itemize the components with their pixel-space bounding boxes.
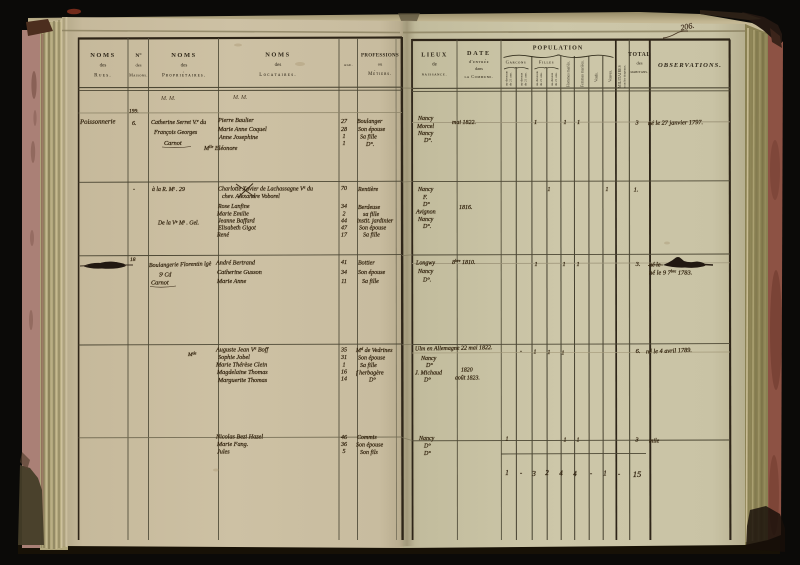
svg-text:1: 1 bbox=[606, 187, 609, 193]
svg-text:35: 35 bbox=[340, 348, 347, 354]
svg-text:Sa fille: Sa fille bbox=[360, 362, 377, 369]
svg-text:D°: D° bbox=[425, 362, 433, 369]
svg-text:44: 44 bbox=[341, 218, 347, 225]
svg-text:Bottier: Bottier bbox=[358, 261, 375, 267]
svg-text:Sophie Jobel: Sophie Jobel bbox=[218, 354, 250, 361]
svg-text:1: 1 bbox=[548, 350, 551, 356]
svg-text:Morcel: Morcel bbox=[416, 124, 434, 130]
svg-text:D°: D° bbox=[423, 443, 431, 450]
svg-text:Longwy: Longwy bbox=[415, 261, 435, 267]
svg-text:1: 1 bbox=[563, 119, 566, 126]
svg-text:Pierre Baulier: Pierre Baulier bbox=[217, 117, 254, 124]
svg-text:de 21 ans.: de 21 ans. bbox=[554, 72, 558, 86]
svg-text:André Bertrand: André Bertrand bbox=[215, 260, 256, 267]
svg-text:1816.: 1816. bbox=[459, 205, 473, 211]
svg-text:PROFESSIONS: PROFESSIONS bbox=[361, 54, 399, 59]
svg-text:Catherine Serret V.e du: Catherine Serret V.e du bbox=[151, 118, 206, 126]
svg-text:TOTAL: TOTAL bbox=[628, 52, 651, 58]
svg-text:ʟᴀ Cᴏᴍᴍᴜɴᴇ.: ʟᴀ Cᴏᴍᴍᴜɴᴇ. bbox=[465, 74, 494, 79]
svg-text:27: 27 bbox=[341, 119, 348, 125]
svg-text:34: 34 bbox=[340, 269, 347, 276]
svg-text:Nicolas Bezi Hazel: Nicolas Bezi Hazel bbox=[215, 434, 263, 441]
svg-text:D°: D° bbox=[423, 377, 431, 384]
svg-text:Elisabeth Gigot: Elisabeth Gigot bbox=[217, 226, 256, 232]
svg-text:70: 70 bbox=[341, 186, 347, 192]
svg-text:46: 46 bbox=[341, 434, 347, 441]
svg-text:Marie Anne Coquel: Marie Anne Coquel bbox=[217, 126, 267, 133]
svg-text:M. M.: M. M. bbox=[160, 96, 176, 102]
svg-text:F.: F. bbox=[422, 195, 427, 201]
svg-text:Marie Thérèse Clein: Marie Thérèse Clein bbox=[215, 362, 267, 369]
svg-text:Avignon: Avignon bbox=[415, 210, 436, 216]
svg-text:47: 47 bbox=[341, 225, 348, 232]
svg-text:Carnot: Carnot bbox=[151, 280, 169, 287]
svg-text:sous les drapeaux.: sous les drapeaux. bbox=[623, 65, 627, 88]
svg-text:31: 31 bbox=[340, 355, 347, 361]
svg-text:28: 28 bbox=[341, 127, 347, 133]
svg-text:Jules: Jules bbox=[217, 449, 230, 456]
svg-text:2: 2 bbox=[343, 212, 346, 218]
svg-text:Nancy: Nancy bbox=[420, 356, 437, 362]
svg-text:De la Ve Mt . Gel.: De la Ve Mt . Gel. bbox=[157, 219, 199, 227]
svg-text:Son épouse: Son épouse bbox=[356, 443, 383, 449]
svg-text:Boulanger: Boulanger bbox=[357, 119, 383, 125]
svg-text:ᴀɢᴇ.: ᴀɢᴇ. bbox=[344, 62, 353, 67]
svg-text:1: 1 bbox=[534, 261, 537, 268]
svg-text:199.: 199. bbox=[129, 109, 139, 115]
svg-text:août 1823.: août 1823. bbox=[455, 376, 480, 382]
svg-text:Son épouse: Son épouse bbox=[359, 226, 386, 232]
svg-text:2: 2 bbox=[545, 469, 549, 477]
svg-text:St Cd: St Cd bbox=[159, 271, 171, 279]
svg-text:Anne Josephine: Anne Josephine bbox=[218, 134, 258, 141]
svg-text:à la R. Mt . 29: à la R. Mt . 29 bbox=[152, 186, 185, 194]
svg-text:des: des bbox=[636, 61, 642, 66]
svg-text:Marie Fang.: Marie Fang. bbox=[216, 441, 248, 448]
svg-text:Charlotte Xavier de Lachassagn: Charlotte Xavier de Lachassagne Ve du bbox=[218, 185, 313, 193]
svg-text:1: 1 bbox=[343, 141, 346, 147]
svg-text:Auguste Jean Ve Boff: Auguste Jean Ve Boff bbox=[215, 346, 269, 354]
svg-text:14: 14 bbox=[341, 376, 347, 383]
svg-text:5: 5 bbox=[343, 449, 346, 455]
svg-text:1: 1 bbox=[343, 363, 346, 369]
svg-text:Nancy: Nancy bbox=[417, 187, 434, 193]
svg-text:41: 41 bbox=[341, 259, 347, 266]
svg-text:M. M.: M. M. bbox=[232, 95, 248, 101]
svg-text:Veufs.: Veufs. bbox=[595, 72, 599, 82]
svg-text:1: 1 bbox=[343, 134, 346, 140]
svg-text:ou: ou bbox=[378, 62, 383, 67]
svg-text:15: 15 bbox=[633, 469, 642, 479]
svg-text:Sa fille: Sa fille bbox=[363, 232, 380, 239]
svg-text:Nancy: Nancy bbox=[417, 269, 434, 275]
svg-text:des: des bbox=[135, 63, 141, 68]
svg-text:D°.: D°. bbox=[365, 141, 374, 148]
svg-text:NOMS: NOMS bbox=[265, 52, 291, 59]
svg-text:Nancy: Nancy bbox=[417, 131, 434, 137]
svg-text:6.: 6. bbox=[636, 348, 641, 355]
svg-text:René: René bbox=[216, 233, 229, 239]
svg-text:Mᴀɪsᴏɴs.: Mᴀɪsᴏɴs. bbox=[129, 73, 148, 78]
svg-text:1: 1 bbox=[577, 438, 580, 444]
svg-text:mai 1822.: mai 1822. bbox=[452, 120, 476, 126]
svg-text:Marguerite Thomas: Marguerite Thomas bbox=[217, 377, 268, 384]
svg-text:Son fils: Son fils bbox=[360, 449, 379, 456]
svg-text:chev. Alexandre Voborel: chev. Alexandre Voborel bbox=[222, 194, 280, 200]
svg-text:NOMS: NOMS bbox=[171, 52, 197, 59]
svg-text:Commis: Commis bbox=[357, 435, 377, 441]
svg-text:Jeanne Baffard: Jeanne Baffard bbox=[218, 218, 256, 225]
svg-text:-: - bbox=[133, 187, 135, 193]
svg-text:né le 27 janvier 1797.: né le 27 janvier 1797. bbox=[648, 119, 703, 127]
svg-text:-: - bbox=[520, 349, 522, 355]
svg-text:Son épouse: Son épouse bbox=[358, 270, 385, 276]
svg-text:1: 1 bbox=[564, 438, 567, 444]
svg-text:ʜᴀʙɪᴛᴀɴs.: ʜᴀʙɪᴛᴀɴs. bbox=[631, 69, 649, 74]
svg-text:Son épouse: Son épouse bbox=[358, 356, 385, 362]
svg-text:D°: D° bbox=[368, 377, 376, 384]
svg-text:Catherine Gusson: Catherine Gusson bbox=[217, 269, 262, 276]
svg-text:des: des bbox=[100, 64, 107, 69]
svg-text:François Georges: François Georges bbox=[153, 130, 198, 136]
svg-text:1: 1 bbox=[562, 351, 565, 357]
svg-text:né le 9 7bre 1783.: né le 9 7bre 1783. bbox=[649, 269, 693, 277]
svg-text:Sa fille: Sa fille bbox=[362, 278, 379, 285]
svg-text:Femmes mariées.: Femmes mariées. bbox=[581, 60, 585, 87]
svg-text:3: 3 bbox=[531, 469, 536, 478]
svg-text:Poissonnerie: Poissonnerie bbox=[79, 118, 116, 126]
svg-text:1: 1 bbox=[534, 119, 537, 126]
svg-text:Mᴇ́ᴛɪᴇʀs.: Mᴇ́ᴛɪᴇʀs. bbox=[368, 71, 392, 77]
svg-text:4: 4 bbox=[559, 470, 563, 478]
svg-text:Md de Vedrines: Md de Vedrines bbox=[355, 346, 393, 354]
svg-text:de 21 ans.: de 21 ans. bbox=[524, 72, 528, 86]
svg-text:DATE: DATE bbox=[467, 50, 491, 57]
svg-text:d'ᴇɴᴛʀᴇ́ᴇ: d'ᴇɴᴛʀᴇ́ᴇ bbox=[469, 59, 490, 64]
svg-text:POPULATION: POPULATION bbox=[533, 46, 584, 52]
svg-text:17: 17 bbox=[341, 233, 348, 239]
svg-text:34: 34 bbox=[340, 203, 347, 210]
svg-text:ɴᴀɪssᴀɴᴄᴇ.: ɴᴀɪssᴀɴᴄᴇ. bbox=[422, 72, 447, 77]
svg-text:4: 4 bbox=[573, 470, 577, 478]
svg-text:Rentière: Rentière bbox=[357, 187, 378, 193]
svg-text:Pʀᴏᴘʀɪᴇ́ᴛᴀɪʀᴇs.: Pʀᴏᴘʀɪᴇ́ᴛᴀɪʀᴇs. bbox=[162, 73, 206, 79]
svg-text:6.: 6. bbox=[132, 121, 137, 127]
svg-text:D°.: D°. bbox=[422, 277, 431, 284]
svg-text:f herbagère: f herbagère bbox=[356, 370, 384, 377]
svg-text:1: 1 bbox=[534, 350, 537, 356]
svg-text:Son épouse: Son épouse bbox=[358, 127, 385, 133]
svg-text:1: 1 bbox=[506, 437, 509, 443]
svg-text:de: de bbox=[432, 63, 438, 68]
svg-text:LIEUX: LIEUX bbox=[421, 52, 448, 59]
svg-text:Lᴏᴄᴀᴛᴀɪʀᴇs.: Lᴏᴄᴀᴛᴀɪʀᴇs. bbox=[259, 73, 297, 78]
svg-text:des: des bbox=[181, 64, 188, 69]
svg-text:D°: D° bbox=[422, 201, 430, 208]
svg-text:Rose Lanfine: Rose Lanfine bbox=[217, 203, 250, 210]
svg-text:1.: 1. bbox=[634, 187, 639, 194]
svg-text:Nancy: Nancy bbox=[417, 116, 434, 122]
svg-text:1: 1 bbox=[562, 261, 565, 268]
svg-text:D°.: D°. bbox=[423, 137, 432, 144]
svg-text:1: 1 bbox=[603, 470, 607, 478]
svg-text:D°: D° bbox=[423, 450, 431, 457]
svg-text:D°.: D°. bbox=[422, 223, 431, 230]
svg-text:1: 1 bbox=[505, 469, 509, 477]
svg-text:Marie Emilie: Marie Emilie bbox=[216, 212, 249, 218]
svg-text:de 21 ans.: de 21 ans. bbox=[539, 72, 543, 86]
svg-text:1: 1 bbox=[577, 119, 580, 126]
svg-text:Hommes mariés.: Hommes mariés. bbox=[567, 61, 571, 87]
svg-text:mile: mile bbox=[649, 439, 660, 445]
svg-text:Marie Anne: Marie Anne bbox=[216, 278, 247, 285]
svg-text:18: 18 bbox=[130, 257, 136, 263]
svg-text:sa fille: sa fille bbox=[363, 211, 380, 218]
svg-text:Rᴜᴇs.: Rᴜᴇs. bbox=[94, 73, 112, 79]
svg-text:3.: 3. bbox=[635, 261, 641, 268]
svg-text:Fɪʟʟᴇs: Fɪʟʟᴇs bbox=[539, 60, 554, 65]
svg-text:1: 1 bbox=[548, 187, 551, 193]
svg-text:Sa fille: Sa fille bbox=[360, 134, 377, 141]
svg-text:instit. jardinier: instit. jardinier bbox=[357, 219, 394, 225]
svg-text:MILITAIRES: MILITAIRES bbox=[618, 65, 622, 88]
svg-text:Mlle Eléonore: Mlle Eléonore bbox=[203, 144, 238, 152]
svg-text:Veuves.: Veuves. bbox=[609, 70, 613, 82]
svg-text:N°: N° bbox=[135, 52, 141, 59]
svg-text:Nancy: Nancy bbox=[417, 217, 434, 223]
svg-text:1: 1 bbox=[576, 261, 579, 268]
svg-text:11: 11 bbox=[341, 279, 347, 285]
svg-text:Nancy: Nancy bbox=[418, 436, 435, 442]
svg-text:dans: dans bbox=[475, 66, 483, 71]
svg-text:des: des bbox=[275, 63, 282, 68]
svg-text:OBSERVATIONS.: OBSERVATIONS. bbox=[658, 62, 722, 69]
svg-text:36: 36 bbox=[340, 442, 347, 448]
svg-text:Gᴀʀᴄᴏɴs: Gᴀʀᴄᴏɴs bbox=[506, 60, 527, 65]
svg-text:16: 16 bbox=[341, 370, 347, 376]
svg-text:NOMS: NOMS bbox=[90, 52, 116, 59]
svg-text:J. Michaud: J. Michaud bbox=[415, 371, 443, 377]
svg-text:Magdelaine Thomas: Magdelaine Thomas bbox=[216, 369, 268, 376]
svg-text:1820: 1820 bbox=[461, 368, 473, 374]
svg-text:de 21 ans.: de 21 ans. bbox=[509, 72, 513, 86]
svg-text:Berdeuse: Berdeuse bbox=[358, 205, 380, 211]
svg-text:Carnot: Carnot bbox=[164, 140, 182, 147]
